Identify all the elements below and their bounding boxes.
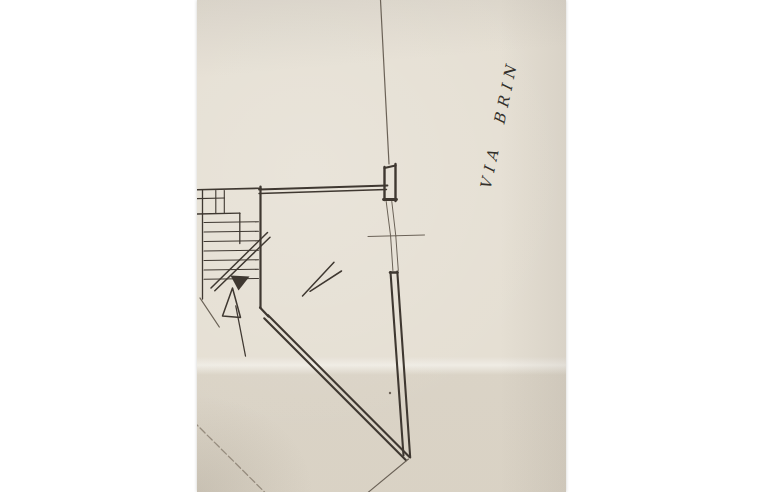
paper-speckle-dot — [389, 392, 391, 394]
wall-extension-line — [368, 459, 409, 492]
scanned-photo-page: VIA BRIN — [0, 0, 764, 492]
window-opening-line-2 — [392, 202, 396, 237]
stair-direction-arrowhead-filled — [231, 276, 250, 291]
diagonal-wall-outer — [268, 315, 410, 457]
stair-landing-edge — [197, 213, 240, 214]
street-wall-lower-inner — [391, 272, 404, 456]
stair-direction-arrow-shaft — [236, 306, 246, 356]
street-pier-wall-top — [385, 166, 396, 169]
pencil-check-mark-b — [310, 271, 342, 291]
stair-tread-6 — [204, 269, 259, 270]
stair-tread-5 — [204, 260, 259, 261]
stair-tread-7 — [204, 279, 259, 280]
stairwell-top-wall — [197, 188, 261, 190]
stair-tread-1 — [204, 222, 259, 223]
floor-plan-paper: VIA BRIN — [197, 0, 566, 492]
stair-tread-2 — [204, 231, 259, 232]
stair-tread-3 — [204, 241, 259, 242]
photo-margin-left — [0, 0, 197, 492]
window-opening-line-3 — [391, 236, 393, 271]
window-opening-line-4 — [396, 236, 399, 271]
street-wall-lower-outer — [397, 272, 410, 458]
lot-boundary-line — [197, 421, 265, 492]
room-top-wall-inner — [259, 190, 387, 194]
room-top-wall-outer — [259, 186, 388, 190]
photo-margin-right — [566, 0, 764, 492]
street-boundary-line — [381, 0, 390, 164]
window-opening-line-1 — [386, 202, 390, 237]
diagonal-wall-inner — [264, 318, 406, 460]
edge-diagonal-line — [200, 298, 219, 327]
stair-landing-step-line — [197, 198, 225, 199]
